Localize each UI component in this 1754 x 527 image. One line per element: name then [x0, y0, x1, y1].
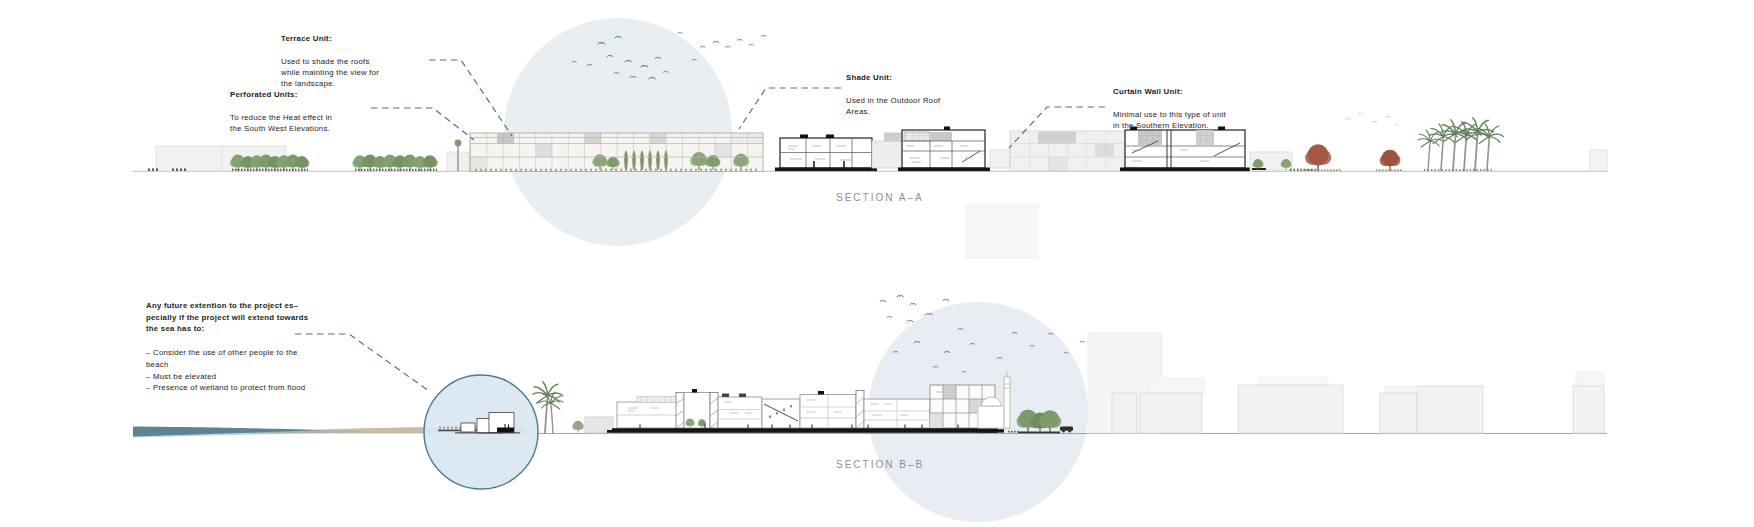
elevation-building — [1010, 131, 1125, 171]
annotation-title: Any future extention to the project es– … — [146, 300, 318, 335]
annotation-perforated-units: Perforated Units: To reduce the Heat eff… — [230, 78, 332, 145]
red-trees — [1303, 144, 1402, 171]
annotation-shade-unit: Shade Unit: Used in the Outdoor Roof Are… — [846, 61, 940, 128]
birds-flock-small — [1345, 113, 1399, 125]
minaret — [1004, 377, 1010, 428]
annotation-body: – Consider the use of other people to th… — [146, 347, 318, 394]
annotation-title: Shade Unit: — [846, 72, 940, 83]
section-b-label: SECTION B–B — [836, 459, 924, 470]
annotation-body: Used in the Outdoor Roof Areas. — [846, 95, 940, 117]
annotation-body: Minimal use to this type of unit in the … — [1113, 109, 1226, 131]
building-base — [612, 428, 998, 433]
annotation-future-extension: Any future extention to the project es– … — [146, 288, 318, 406]
leader-line-perforated-units — [371, 108, 474, 140]
main-building-section — [607, 385, 998, 433]
tree-row — [352, 155, 437, 171]
section-a-label: SECTION A–A — [836, 192, 924, 203]
annotation-title: Terrace Unit: — [281, 33, 379, 44]
background-building — [1590, 150, 1607, 171]
section-cut-building — [775, 135, 877, 172]
annotation-title: Curtain Wall Unit: — [1113, 86, 1226, 97]
section-cut-building — [898, 127, 990, 172]
focus-circle-group — [424, 375, 538, 489]
stepped-auditorium — [762, 399, 800, 428]
architectural-sections-sheet: Terrace Unit: Used to shade the roofs wh… — [0, 0, 1754, 527]
small-tree — [572, 421, 584, 433]
palm-trees — [1418, 118, 1503, 171]
annotation-title: Perforated Units: — [230, 89, 332, 100]
highlight-circle-a — [504, 18, 732, 246]
leader-line-shade-unit — [739, 88, 841, 129]
annotation-curtain-wall-unit: Curtain Wall Unit: Minimal use to this t… — [1113, 75, 1226, 142]
glass-facade-building — [470, 133, 763, 172]
background-building — [990, 150, 1010, 168]
background-buildings — [1088, 333, 1604, 433]
leader-line-terrace-unit — [429, 60, 512, 136]
faint-background-building — [966, 204, 1038, 258]
section-b-drawing — [133, 204, 1607, 522]
annotation-body: To reduce the Heat effect in the South W… — [230, 112, 332, 134]
